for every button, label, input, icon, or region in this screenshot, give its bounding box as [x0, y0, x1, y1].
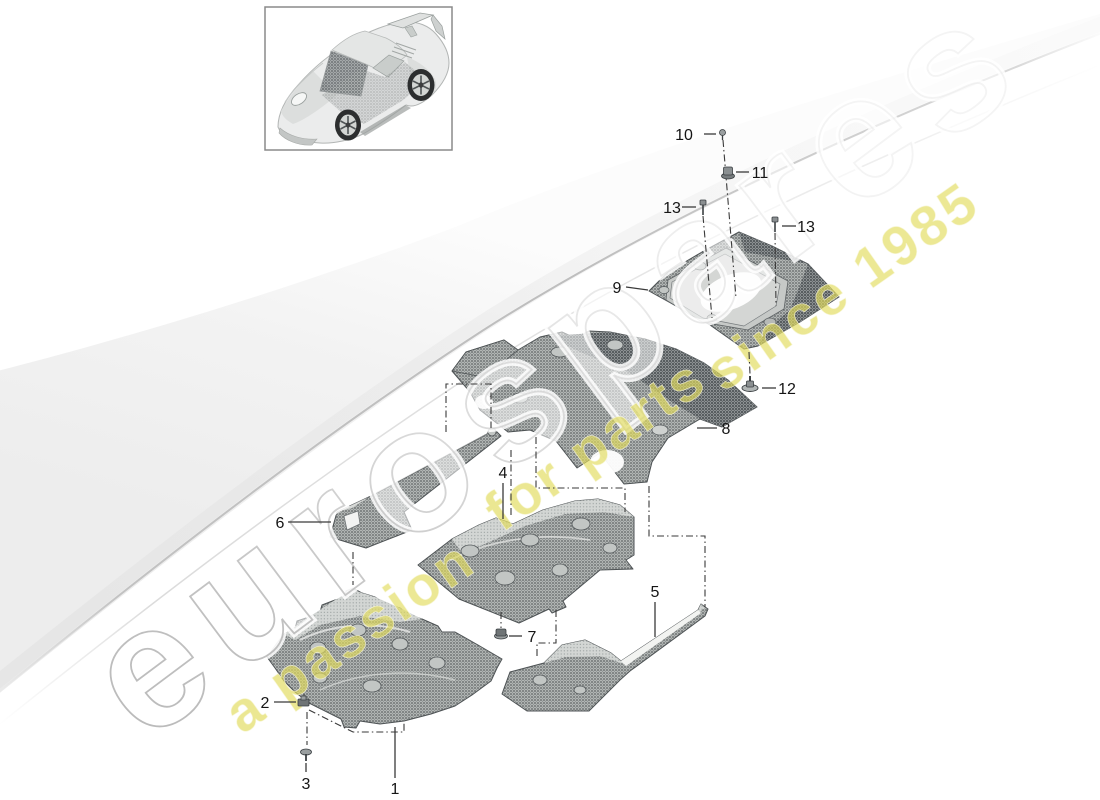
svg-text:1: 1	[391, 781, 400, 798]
svg-text:10: 10	[675, 127, 693, 144]
svg-text:3: 3	[302, 776, 311, 793]
svg-text:7: 7	[528, 629, 537, 646]
svg-text:11: 11	[752, 165, 769, 182]
svg-text:13: 13	[797, 219, 815, 236]
svg-text:2: 2	[261, 695, 270, 712]
svg-text:13: 13	[663, 200, 681, 217]
svg-text:4: 4	[499, 465, 508, 482]
svg-text:8: 8	[722, 421, 731, 438]
svg-text:12: 12	[778, 381, 796, 398]
svg-text:9: 9	[613, 280, 622, 297]
svg-text:6: 6	[276, 515, 285, 532]
svg-text:5: 5	[651, 584, 660, 601]
